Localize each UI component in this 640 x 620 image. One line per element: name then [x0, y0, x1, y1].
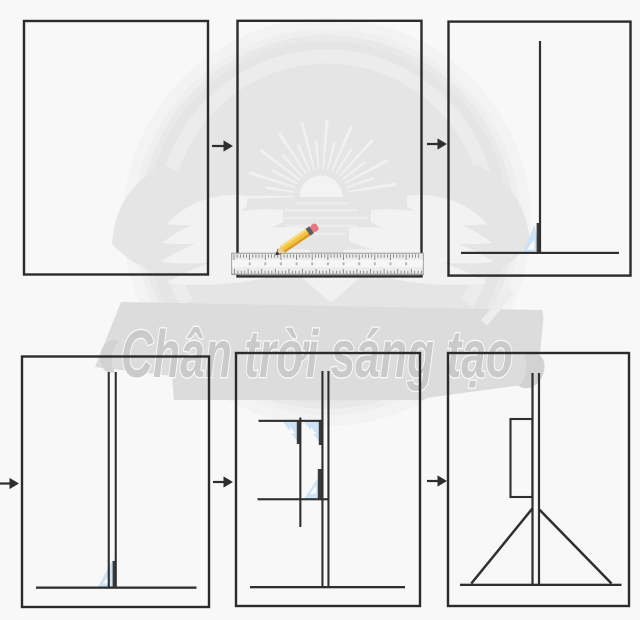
- svg-text:Chân trời sáng tạo: Chân trời sáng tạo: [121, 317, 513, 392]
